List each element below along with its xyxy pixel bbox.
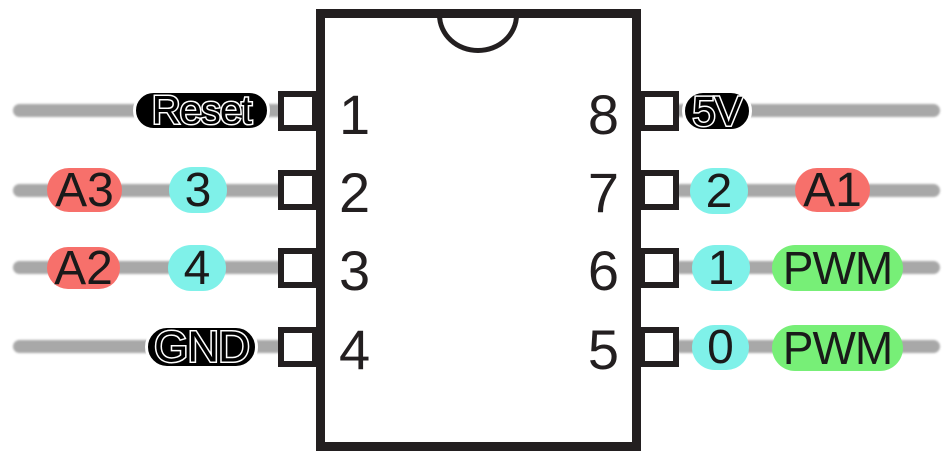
pwm-pin5-label: PWM xyxy=(783,321,892,375)
digital-3-label: 3 xyxy=(185,163,212,218)
pin-pad-7 xyxy=(639,170,679,210)
pin-pad-5 xyxy=(639,327,679,367)
pin-number-2: 2 xyxy=(339,164,369,222)
label-pill-a1: A1 xyxy=(795,168,870,212)
label-pill-digital-2: 2 xyxy=(690,168,748,214)
pin-pad-6 xyxy=(639,248,679,288)
pin-number-5: 5 xyxy=(588,321,618,379)
label-pill-digital-0: 0 xyxy=(692,325,749,370)
label-pill-digital-4: 4 xyxy=(168,245,226,291)
chip-body xyxy=(316,9,641,451)
pin-number-3: 3 xyxy=(339,242,369,300)
5v-label: 5V xyxy=(692,88,742,135)
pwm-pin6-label: PWM xyxy=(783,241,892,295)
pin-number-6: 6 xyxy=(588,242,618,300)
pin-number-8: 8 xyxy=(588,86,618,144)
label-pill-digital-1: 1 xyxy=(692,245,750,291)
pin-number-4: 4 xyxy=(339,321,369,379)
label-pill-a2: A2 xyxy=(47,247,120,289)
attiny-pinout-diagram: 1 2 3 4 8 7 6 5 Reset A3 3 A2 4 GND 5V 2… xyxy=(0,0,951,459)
digital-1-label: 1 xyxy=(708,241,735,296)
label-pill-pwm-pin6: PWM xyxy=(772,245,903,291)
pin-pad-1 xyxy=(278,91,318,131)
pin-pad-4 xyxy=(278,327,318,367)
label-pill-pwm-pin5: PWM xyxy=(772,325,903,371)
label-pill-5v: 5V xyxy=(682,90,752,132)
pin-pad-3 xyxy=(278,248,318,288)
a1-label: A1 xyxy=(803,163,862,218)
pin-pad-2 xyxy=(278,170,318,210)
pin-number-1: 1 xyxy=(339,86,369,144)
digital-2-label: 2 xyxy=(706,164,733,219)
reset-label: Reset xyxy=(152,89,252,133)
label-pill-a3: A3 xyxy=(47,168,122,212)
pin-number-7: 7 xyxy=(588,164,618,222)
label-pill-digital-3: 3 xyxy=(169,167,227,213)
gnd-label: GND xyxy=(154,323,249,372)
label-pill-gnd: GND xyxy=(145,325,258,369)
digital-4-label: 4 xyxy=(184,241,211,296)
pin-pad-8 xyxy=(639,91,679,131)
a3-label: A3 xyxy=(55,163,114,218)
a2-label: A2 xyxy=(54,241,113,296)
digital-0-label: 0 xyxy=(707,320,734,375)
label-pill-reset: Reset xyxy=(133,90,270,131)
